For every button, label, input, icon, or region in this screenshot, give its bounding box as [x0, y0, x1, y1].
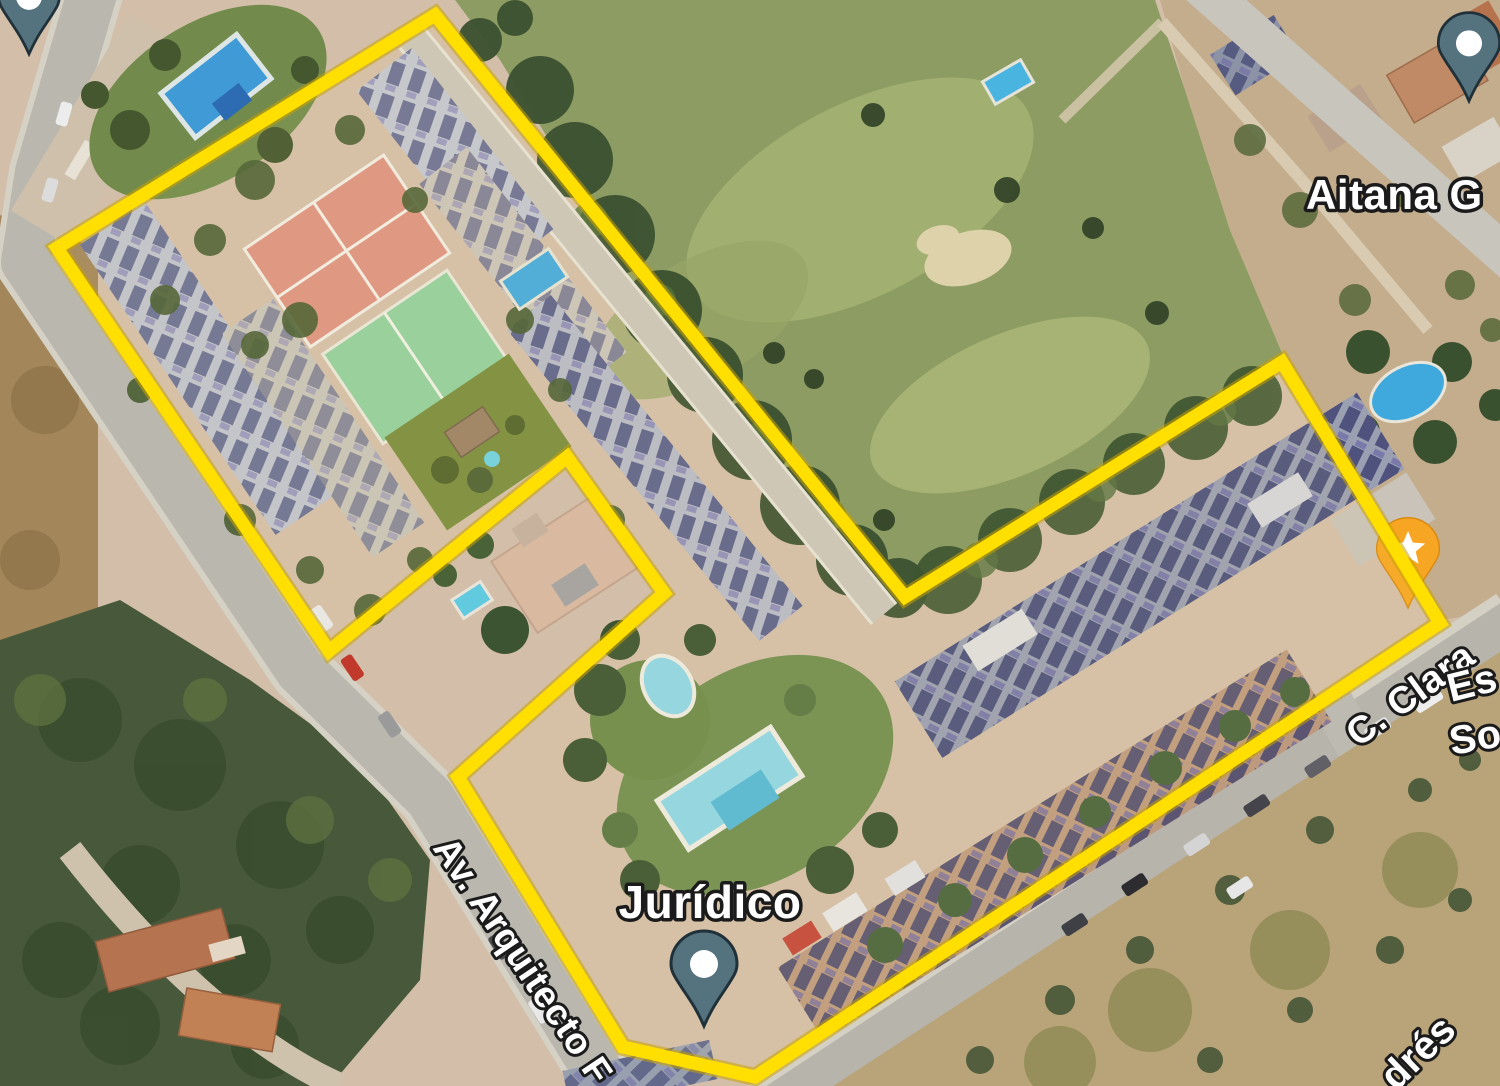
label-aitana: Aitana G [1306, 171, 1483, 218]
label-so-fragment: So [1446, 711, 1500, 763]
satellite-map: Jurídico Aitana G Av. Arquitecto F C. Cl… [0, 0, 1500, 1086]
label-juridico: Jurídico [619, 876, 802, 928]
